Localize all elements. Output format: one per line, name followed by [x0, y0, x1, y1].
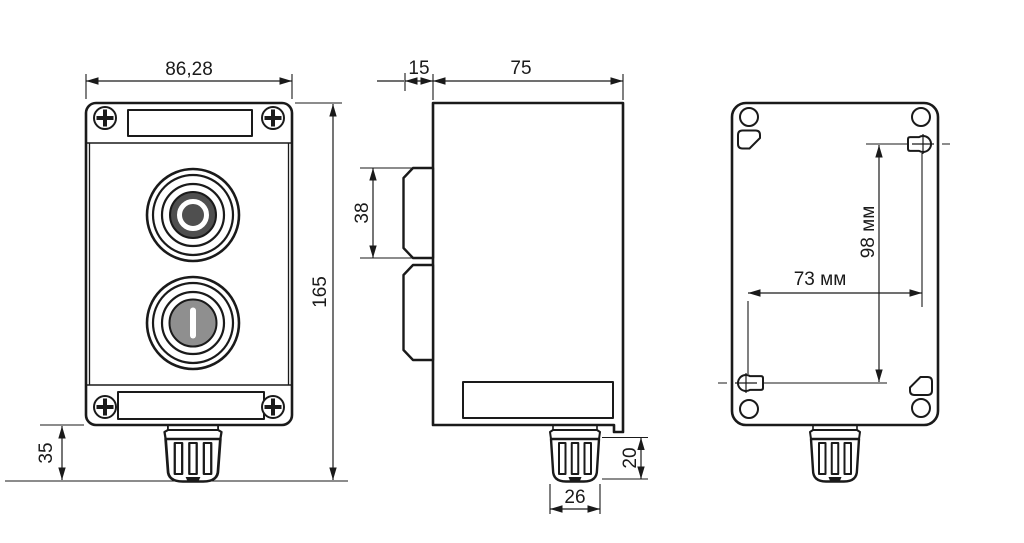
stop-button	[147, 169, 239, 261]
side-terminal-cover	[463, 382, 613, 418]
dim-body-depth-label: 75	[510, 58, 531, 79]
start-symbol-i-icon	[190, 308, 196, 339]
dimension-front-width: 86,28	[86, 59, 292, 81]
dim-front-height-label: 165	[310, 276, 331, 308]
front-cable-gland	[165, 425, 222, 482]
side-button-boss-bottom	[404, 265, 434, 360]
dim-gland-protrusion-label: 35	[36, 442, 57, 463]
top-label-plate	[128, 110, 252, 136]
screw-bottom-right	[262, 396, 284, 418]
screw-bottom-left	[94, 396, 116, 418]
dimension-gland-width: 26	[550, 487, 600, 509]
bottom-label-plate	[118, 392, 264, 419]
back-corner-hole-top-right	[912, 108, 930, 126]
side-cable-gland	[550, 425, 600, 482]
back-corner-hole-bottom-left	[740, 400, 758, 418]
dim-gland-width-label: 26	[564, 487, 585, 508]
dim-mount-h-label: 73 мм	[794, 269, 847, 290]
dim-front-width-label: 86,28	[165, 59, 213, 80]
dim-lid-depth-label: 15	[408, 58, 429, 79]
dimension-gland-height: 20	[620, 438, 641, 480]
screw-top-right	[262, 107, 284, 129]
stop-button-cap	[170, 192, 216, 238]
dimension-body-depth: 75	[433, 58, 623, 81]
dim-button-block-label: 38	[352, 202, 373, 223]
front-enclosure-body	[86, 103, 292, 425]
dimension-button-block-height: 38	[352, 168, 373, 258]
side-view	[404, 103, 624, 482]
back-corner-hole-bottom-right	[912, 399, 930, 417]
dimension-gland-protrusion: 35	[36, 426, 62, 480]
back-corner-hole-top-left	[740, 108, 758, 126]
start-button	[147, 277, 239, 369]
drawing-canvas: 86,28 165 35 15 75 38 20	[0, 0, 1024, 543]
screw-top-left	[94, 107, 116, 129]
technical-drawing: 86,28 165 35 15 75 38 20	[0, 0, 1024, 543]
dim-gland-height-label: 20	[620, 447, 641, 468]
side-button-boss-top	[404, 168, 434, 258]
dimension-front-height: 165	[310, 104, 333, 480]
back-cable-gland	[810, 425, 860, 482]
front-view	[86, 103, 292, 482]
dim-mount-v-label: 98 мм	[858, 206, 879, 259]
